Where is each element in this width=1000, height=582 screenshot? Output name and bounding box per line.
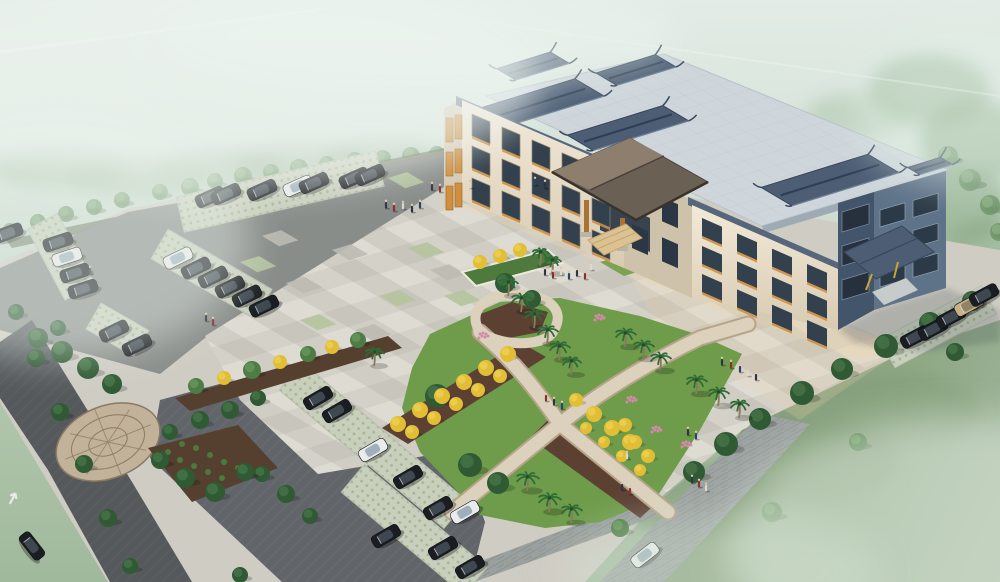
shrub [207, 452, 213, 458]
aerial-rendering-canvas [0, 0, 1000, 582]
lattice-panel [446, 186, 453, 210]
shrub [219, 475, 225, 481]
shrub [193, 445, 199, 451]
shrub [205, 469, 211, 475]
shrub [179, 441, 185, 447]
shrub [177, 457, 183, 463]
lattice-panel [455, 183, 462, 207]
rendering-stage [0, 0, 1000, 582]
shrub [191, 463, 197, 469]
pillar-base [581, 232, 592, 237]
tree [980, 195, 1000, 215]
shrub [221, 459, 227, 465]
canopy-pillar [584, 200, 589, 234]
